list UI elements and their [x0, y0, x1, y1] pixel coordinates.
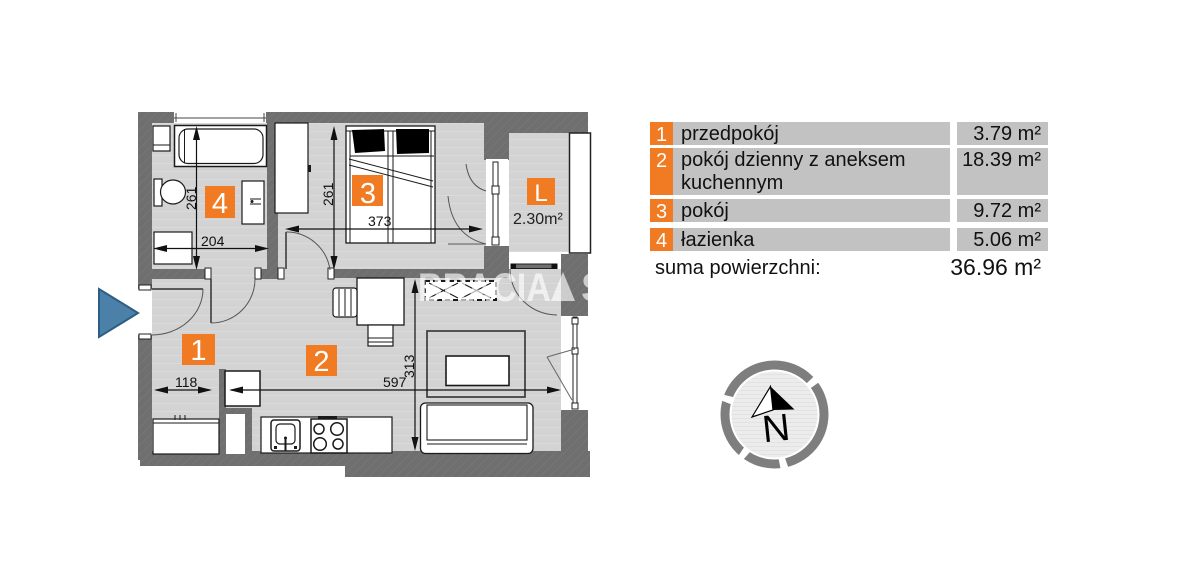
svg-text:3: 3: [656, 201, 667, 223]
svg-text:313: 313: [401, 354, 417, 378]
svg-text:36.96 m²: 36.96 m²: [950, 254, 1041, 280]
svg-text:pokój dzienny z aneksem: pokój dzienny z aneksem: [681, 149, 906, 171]
svg-text:4: 4: [656, 230, 667, 252]
svg-text:BRACIA: BRACIA: [418, 266, 551, 310]
svg-text:kuchennym: kuchennym: [681, 172, 783, 194]
svg-text:1: 1: [656, 124, 667, 146]
svg-text:L: L: [534, 180, 547, 207]
svg-text:2: 2: [313, 346, 329, 378]
svg-text:3.79 m²: 3.79 m²: [973, 123, 1041, 145]
svg-text:373: 373: [368, 213, 392, 229]
svg-text:261: 261: [183, 186, 199, 210]
svg-text:2.30m²: 2.30m²: [513, 211, 563, 228]
svg-text:118: 118: [175, 374, 198, 390]
svg-text:S: S: [581, 266, 608, 310]
svg-text:9.72 m²: 9.72 m²: [973, 200, 1041, 222]
svg-text:przedpokój: przedpokój: [681, 123, 779, 145]
svg-text:suma powierzchni:: suma powierzchni:: [655, 257, 821, 279]
svg-text:1: 1: [190, 335, 206, 367]
svg-text:4: 4: [212, 188, 228, 220]
svg-text:łazienka: łazienka: [681, 229, 755, 251]
svg-text:2: 2: [656, 150, 667, 172]
svg-text:N: N: [760, 407, 792, 452]
svg-text:5.06 m²: 5.06 m²: [973, 229, 1041, 251]
svg-text:3: 3: [360, 178, 376, 210]
svg-text:204: 204: [201, 233, 225, 249]
svg-text:18.39 m²: 18.39 m²: [962, 149, 1041, 171]
svg-text:261: 261: [320, 182, 336, 206]
svg-text:pokój: pokój: [681, 200, 729, 222]
